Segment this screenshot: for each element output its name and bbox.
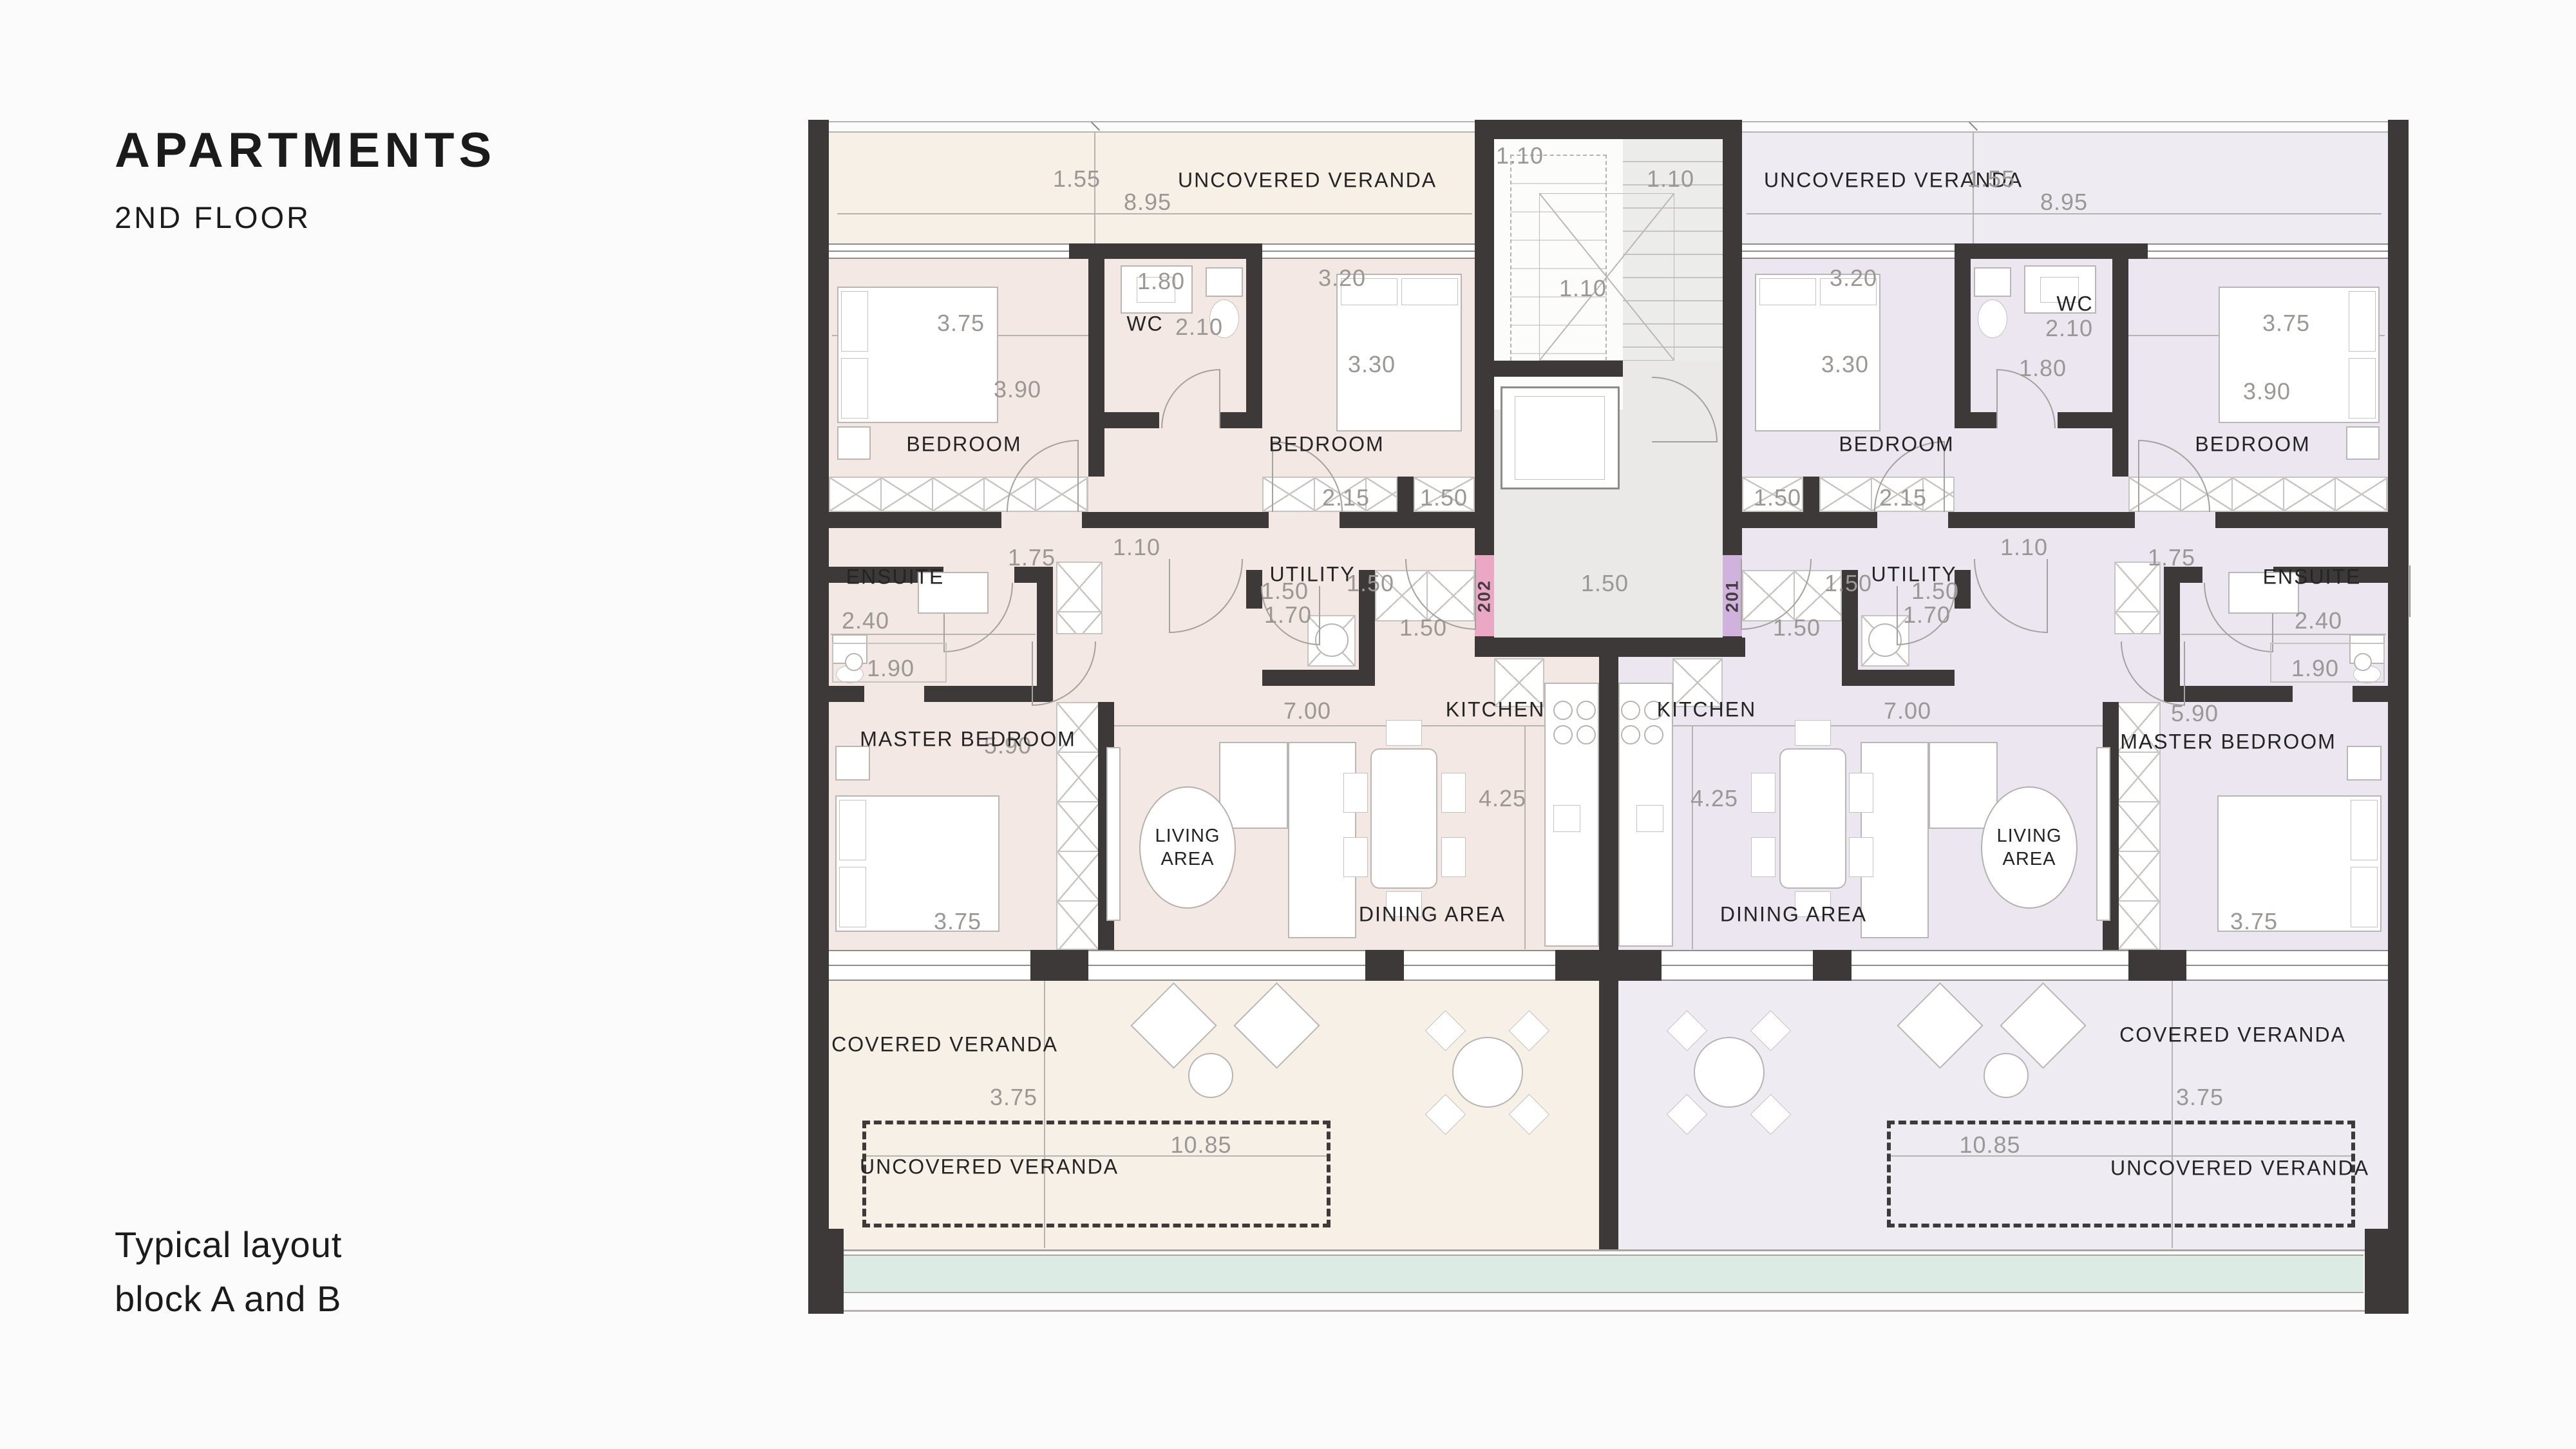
window (2186, 950, 2388, 981)
tv-cabinet (1106, 747, 1121, 921)
wall (1104, 412, 1159, 428)
living-area-line1-b: LIVING (1996, 824, 2061, 848)
room-label-dining-b: DINING AREA (1720, 903, 1867, 927)
stove-burner (1644, 725, 1663, 744)
dim-open-d-a: 4.25 (1479, 785, 1526, 812)
dining-chair (1751, 773, 1776, 813)
dim-util-b-b: 1.50 (1824, 570, 1872, 597)
window (1742, 243, 1955, 259)
wall (2215, 512, 2388, 528)
pillow (1401, 278, 1458, 305)
dim-wc-w-b: 2.10 (2045, 315, 2093, 342)
room-label-bedroom2-a: BEDROOM (1269, 433, 1384, 457)
dim-ward-b-a: 1.50 (1420, 484, 1468, 511)
dim-util-b-a: 1.50 (1347, 570, 1394, 597)
dim-master-w-a: 3.75 (934, 908, 981, 935)
living-area-line2-a: AREA (1161, 848, 1215, 871)
toilet-tank (1974, 267, 2011, 297)
pillow (839, 800, 866, 860)
dim-open-w-b: 7.00 (1884, 697, 1931, 724)
toilet-bowl (1978, 299, 2007, 338)
dim-bed1-d-b: 3.90 (2243, 378, 2291, 405)
footnote-line-1: Typical layout (115, 1224, 342, 1265)
nightstand (837, 426, 871, 460)
wall (1599, 657, 1618, 1249)
dim-util-a-a: 1.50 (1261, 578, 1309, 605)
stove-burner (1621, 701, 1640, 720)
wall (829, 686, 864, 702)
shower-head (2354, 653, 2372, 671)
window (2148, 243, 2388, 259)
wall (2128, 950, 2186, 981)
room-label-bedroom1-b: BEDROOM (2195, 433, 2310, 457)
dim-ward-c-b: 1.75 (2148, 544, 2195, 571)
dim-master-w-b: 3.75 (2230, 908, 2278, 935)
stove-burner (1621, 725, 1640, 744)
dim-bed2-w-a: 3.20 (1318, 265, 1366, 292)
wall (2353, 686, 2388, 702)
dim-ens-d-a: 1.90 (867, 655, 914, 682)
side-table (1984, 1053, 2029, 1098)
wall (1948, 512, 2135, 528)
dim-bed2-w-b: 3.20 (1830, 265, 1877, 292)
dim-hall-a: 1.10 (1113, 534, 1160, 561)
room-label-ensuite-a: ENSUITE (846, 565, 945, 589)
wall (1262, 670, 1375, 686)
window (1262, 243, 1475, 259)
dim-bed1-w-b: 3.75 (2262, 310, 2310, 337)
stove-burner (1577, 725, 1596, 744)
side-table (1188, 1053, 1233, 1098)
wall (1365, 950, 1404, 981)
room-label-uncovered-veranda-b: UNCOVERED VERANDA (2110, 1157, 2369, 1180)
wall (1475, 638, 1745, 657)
dim-bed1-d-a: 3.90 (994, 376, 1041, 403)
room-label-covered-veranda-a: COVERED VERANDA (831, 1033, 1058, 1057)
wall (1246, 259, 1262, 428)
dim-bed1-w-a: 3.75 (937, 310, 985, 337)
wall (1842, 670, 1955, 686)
window (829, 950, 1030, 981)
wall (1220, 412, 1246, 428)
unit-b-entrance-tag: 201 (1723, 555, 1742, 636)
room-label-dining-a: DINING AREA (1359, 903, 1506, 927)
dim-ens-w-b: 2.40 (2295, 607, 2342, 634)
stove-burner (1553, 701, 1573, 720)
wall (808, 1229, 844, 1314)
dim-cv-d-a: 3.75 (990, 1084, 1037, 1111)
dim-bed2-d-b: 3.30 (1821, 351, 1869, 378)
dim-veranda-h-b: 1.55 (1967, 166, 2015, 193)
room-label-wc-b: WC (2056, 292, 2093, 316)
dining-chair (1751, 837, 1776, 877)
pillow (841, 358, 868, 419)
dim-uv-w-b: 10.85 (1959, 1132, 2020, 1159)
pillow (841, 291, 868, 352)
dim-ens-w-a: 2.40 (842, 607, 889, 634)
window (1088, 950, 1365, 981)
round-table (1694, 1037, 1765, 1108)
wall (1955, 243, 2148, 259)
room-label-veranda-top-a: UNCOVERED VERANDA (1178, 169, 1437, 193)
dim-cv-d-b: 3.75 (2176, 1084, 2224, 1111)
nightstand (2347, 746, 2382, 781)
kitchen-sink (1553, 805, 1580, 832)
dining-chair (1849, 773, 1873, 813)
wall (1030, 950, 1088, 981)
room-label-bedroom2-b: BEDROOM (1839, 433, 1954, 457)
wall (2365, 1229, 2400, 1314)
wall (1397, 477, 1414, 528)
wall (1555, 950, 1599, 981)
dining-chair (1441, 773, 1466, 813)
dim-open-d-b: 4.25 (1690, 785, 1738, 812)
nightstand (2346, 426, 2380, 460)
room-label-kitchen-b: KITCHEN (1657, 698, 1756, 722)
wall (1618, 950, 1662, 981)
pillow (1759, 278, 1816, 305)
stove-burner (1577, 701, 1596, 720)
pillow (2349, 358, 2376, 419)
dim-core-lobby: 1.50 (1581, 570, 1629, 597)
wall (808, 120, 829, 1314)
dining-table (1779, 748, 1846, 889)
window (1851, 950, 2128, 981)
elevator-car (1515, 396, 1605, 480)
dining-chair (1441, 837, 1466, 877)
dim-hall-b: 1.10 (2000, 534, 2048, 561)
living-area-label-a: LIVING AREA (1139, 786, 1236, 909)
pillow (2349, 291, 2376, 352)
stove-burner (1553, 725, 1573, 744)
dim-bed2-d-a: 3.30 (1348, 351, 1396, 378)
room-label-wc-a: WC (1126, 312, 1163, 336)
dining-chair (1795, 720, 1831, 746)
dim-core-top: 1.10 (1496, 142, 1544, 169)
wall (1069, 243, 1262, 259)
dining-table (1370, 748, 1437, 889)
kitchen-sink (1636, 805, 1663, 832)
sofa-chaise (1219, 742, 1288, 829)
wardrobe-column (2114, 562, 2161, 634)
dim-veranda-w-a: 8.95 (1124, 189, 1171, 216)
window (1404, 950, 1555, 981)
wall (1494, 120, 1723, 139)
plan-bottom-line (808, 1310, 2409, 1312)
wardrobe-column (1056, 562, 1103, 634)
veranda-edge-line (829, 1249, 2388, 1251)
dim-open-w-a: 7.00 (1283, 697, 1331, 724)
room-label-master-b: MASTER BEDROOM (2120, 730, 2336, 754)
room-label-bedroom1-a: BEDROOM (906, 433, 1021, 457)
wall (2388, 120, 2409, 1314)
dim-kit-side-a: 1.50 (1399, 614, 1447, 641)
wall (829, 512, 1001, 528)
footnote-line-2: block A and B (115, 1278, 341, 1320)
dim-veranda-h-a: 1.55 (1053, 166, 1101, 193)
pillow (839, 867, 866, 927)
dim-veranda-w-b: 8.95 (2040, 189, 2088, 216)
room-label-kitchen-a: KITCHEN (1446, 698, 1545, 722)
dim-line (1618, 725, 2103, 726)
round-table (1452, 1037, 1523, 1108)
dim-util-c-b: 1.70 (1903, 601, 1951, 629)
living-area-label-b: LIVING AREA (1981, 786, 2078, 909)
tv-cabinet (2096, 747, 2110, 921)
dining-chair (1386, 720, 1422, 746)
dining-chair (1343, 773, 1368, 813)
dim-util-c-a: 1.70 (1264, 601, 1312, 629)
wall (1246, 570, 1262, 609)
dim-wc-top-a: 1.80 (1137, 268, 1185, 295)
dim-tick (1969, 122, 1978, 131)
dim-line (1524, 725, 1526, 949)
living-area-line1-a: LIVING (1155, 824, 1220, 848)
dim-ward-b-b: 1.50 (1754, 484, 1801, 511)
dim-util-a-b: 1.50 (1911, 578, 1959, 605)
toilet-tank (1206, 267, 1243, 297)
wall (2112, 259, 2128, 477)
wall (1813, 950, 1851, 981)
room-label-covered-veranda-b: COVERED VERANDA (2119, 1023, 2346, 1047)
dining-chair (1343, 837, 1368, 877)
room-label-uncovered-veranda-a: UNCOVERED VERANDA (860, 1155, 1119, 1179)
dim-master-l-b: 5.90 (2171, 700, 2219, 727)
wall (1955, 259, 1971, 428)
unit-a-entrance-tag: 202 (1475, 555, 1494, 636)
shower-head (845, 653, 863, 671)
pool-strip (844, 1255, 2363, 1293)
window (1662, 950, 1813, 981)
page-subtitle: 2ND FLOOR (115, 200, 311, 235)
room-label-master-a: MASTER BEDROOM (860, 728, 1076, 752)
wall (1971, 412, 1996, 428)
dim-uv-w-a: 10.85 (1170, 1132, 1231, 1159)
dim-line (1114, 725, 1599, 726)
wall (1088, 259, 1104, 477)
pillow (2351, 867, 2378, 927)
dim-wc-w-a: 2.10 (1175, 314, 1223, 341)
wall (1082, 512, 1269, 528)
pillow (2351, 800, 2378, 860)
dim-kit-side-b: 1.50 (1773, 614, 1821, 641)
dim-core-bottom: 1.10 (1559, 275, 1607, 302)
dim-ward-a-a: 2.15 (1322, 484, 1370, 511)
wall (1494, 361, 1623, 377)
window (829, 243, 1069, 259)
wall (2058, 412, 2112, 428)
wall (1803, 477, 1819, 528)
dim-wc-top-b: 1.80 (2019, 355, 2067, 382)
dim-line (1692, 725, 1693, 949)
page: { "page": { "title": "APARTMENTS", "subt… (0, 0, 2576, 1449)
dim-ward-a-b: 2.15 (1879, 484, 1927, 511)
dim-ward-c-a: 1.75 (1008, 544, 1056, 571)
dim-core-right: 1.10 (1647, 166, 1694, 193)
dim-ens-d-b: 1.90 (2291, 655, 2339, 682)
dining-chair (1849, 837, 1873, 877)
room-label-ensuite-b: ENSUITE (2263, 565, 2362, 589)
dim-tick (1091, 122, 1100, 131)
page-title: APARTMENTS (115, 122, 496, 178)
living-area-line2-b: AREA (2003, 848, 2056, 871)
